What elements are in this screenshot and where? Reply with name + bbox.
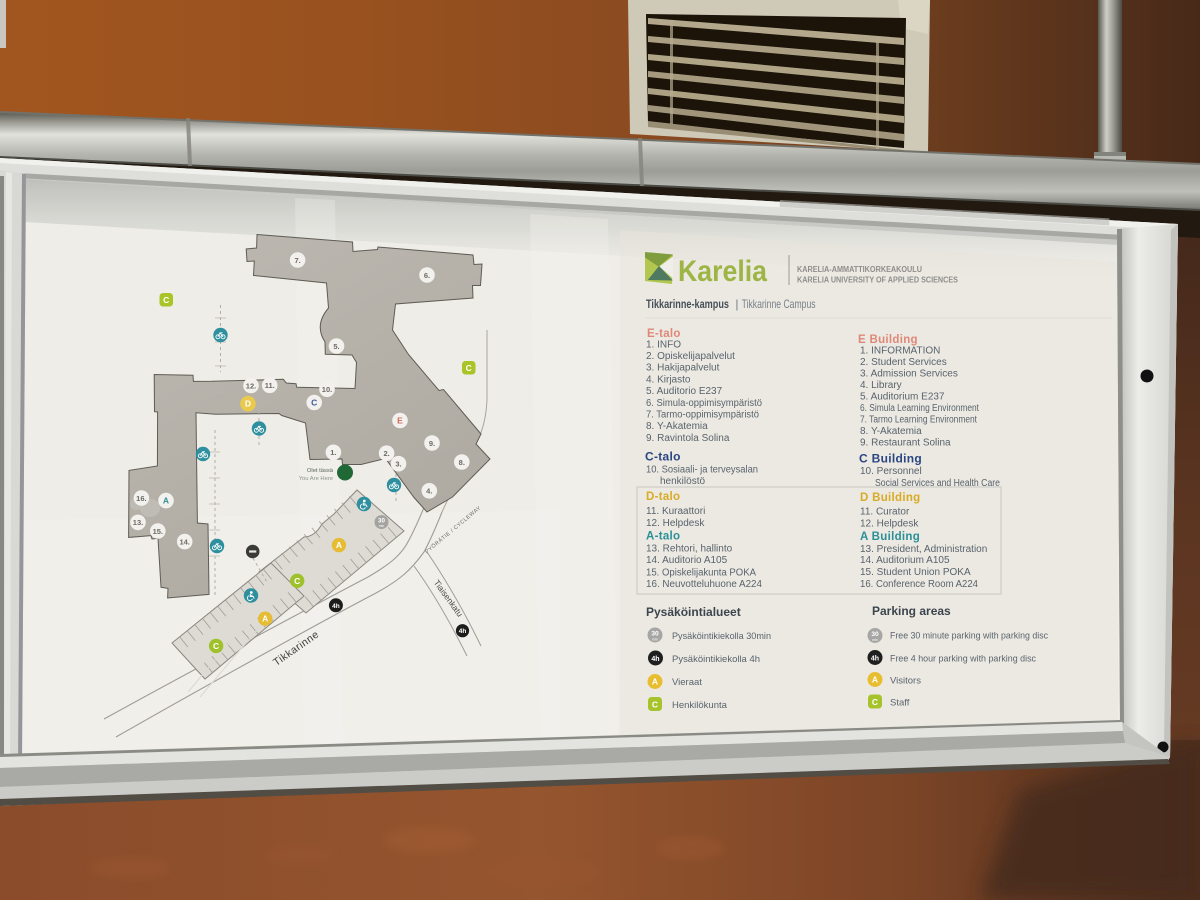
svg-text:henkilöstö: henkilöstö — [660, 476, 705, 487]
svg-text:Henkilökunta: Henkilökunta — [672, 700, 728, 711]
svg-text:C: C — [294, 576, 300, 586]
svg-text:3.: 3. — [395, 460, 401, 469]
svg-text:C: C — [652, 700, 658, 710]
svg-text:3. Hakijapalvelut: 3. Hakijapalvelut — [646, 363, 720, 374]
svg-text:10. Sosiaali- ja terveysalan: 10. Sosiaali- ja terveysalan — [646, 465, 758, 476]
svg-text:1. INFORMATION: 1. INFORMATION — [860, 346, 940, 357]
svg-text:C-talo: C-talo — [645, 450, 681, 464]
svg-text:14. Auditorium A105: 14. Auditorium A105 — [860, 555, 950, 566]
svg-text:C: C — [163, 295, 169, 305]
svg-text:KARELIA UNIVERSITY OF APPLIED: KARELIA UNIVERSITY OF APPLIED SCIENCES — [797, 276, 958, 285]
svg-text:C: C — [872, 697, 878, 707]
svg-text:D Building: D Building — [860, 492, 921, 504]
svg-text:7.: 7. — [294, 256, 300, 265]
svg-text:9.: 9. — [429, 439, 435, 448]
svg-text:Pysäköintikiekolla 30min: Pysäköintikiekolla 30min — [672, 631, 771, 642]
svg-text:Free 30 minute parking with pa: Free 30 minute parking with parking disc — [890, 631, 1048, 642]
svg-text:15. Opiskelijakunta POKA: 15. Opiskelijakunta POKA — [646, 568, 756, 579]
svg-text:Karelia: Karelia — [678, 255, 767, 288]
svg-text:4h: 4h — [459, 628, 467, 635]
svg-text:min: min — [872, 638, 878, 642]
svg-text:4. Kirjasto: 4. Kirjasto — [646, 374, 691, 385]
svg-text:12. Helpdesk: 12. Helpdesk — [646, 518, 705, 529]
svg-text:11. Kuraattori: 11. Kuraattori — [646, 506, 705, 517]
svg-text:C: C — [311, 398, 317, 408]
svg-text:C: C — [213, 641, 219, 651]
svg-text:C Building: C Building — [859, 452, 922, 466]
svg-text:C: C — [466, 363, 472, 373]
svg-text:6. Simula-oppimisympäristö: 6. Simula-oppimisympäristö — [646, 398, 762, 409]
svg-text:2. Student Services: 2. Student Services — [860, 357, 947, 368]
svg-text:1. INFO: 1. INFO — [646, 339, 681, 350]
svg-text:14.: 14. — [179, 537, 189, 546]
svg-text:D: D — [245, 399, 251, 409]
svg-text:Olet tässä: Olet tässä — [307, 468, 334, 474]
svg-text:4h: 4h — [332, 603, 340, 610]
svg-text:A Building: A Building — [860, 531, 920, 543]
svg-text:30: 30 — [871, 631, 879, 638]
svg-text:12. Helpdesk: 12. Helpdesk — [860, 519, 919, 530]
svg-text:Free 4 hour parking with parki: Free 4 hour parking with parking disc — [890, 654, 1036, 665]
svg-text:You Are Here: You Are Here — [299, 476, 333, 482]
svg-text:30: 30 — [651, 630, 659, 637]
svg-text:Pysäköintialueet: Pysäköintialueet — [646, 605, 741, 619]
svg-text:15.: 15. — [153, 527, 163, 536]
svg-text:3. Admission Services: 3. Admission Services — [860, 369, 958, 380]
svg-text:15. Student Union POKA: 15. Student Union POKA — [860, 567, 971, 578]
svg-text:4. Library: 4. Library — [860, 380, 902, 391]
svg-text:16.: 16. — [136, 494, 146, 503]
svg-text:D-talo: D-talo — [646, 491, 680, 503]
svg-text:7. Tarmo Learning Environment: 7. Tarmo Learning Environment — [860, 415, 977, 426]
svg-text:2.: 2. — [383, 449, 389, 458]
svg-text:16. Neuvotteluhuone A224: 16. Neuvotteluhuone A224 — [646, 579, 762, 590]
svg-text:5.: 5. — [333, 342, 339, 351]
svg-text:6. Simula Learning Environment: 6. Simula Learning Environment — [860, 403, 979, 414]
svg-text:Visitors: Visitors — [890, 676, 921, 687]
svg-text:8. Y-Akatemia: 8. Y-Akatemia — [646, 421, 708, 432]
svg-text:8.: 8. — [459, 458, 465, 467]
svg-text:14. Auditorio A105: 14. Auditorio A105 — [646, 555, 728, 566]
svg-text:1.: 1. — [330, 448, 336, 457]
svg-text:8. Y-Akatemia: 8. Y-Akatemia — [860, 426, 922, 437]
svg-text:A: A — [262, 614, 268, 624]
svg-text:E Building: E Building — [858, 334, 918, 346]
svg-text:A: A — [652, 677, 658, 687]
svg-text:A-talo: A-talo — [646, 531, 680, 543]
svg-text:E-talo: E-talo — [647, 328, 681, 340]
svg-text:7. Tarmo-oppimisympäristö: 7. Tarmo-oppimisympäristö — [646, 410, 759, 421]
svg-text:12.: 12. — [246, 381, 256, 390]
svg-text:A: A — [872, 675, 878, 685]
svg-text:Social Services and Health Car: Social Services and Health Care — [875, 478, 1000, 489]
svg-text:5. Auditorio E237: 5. Auditorio E237 — [646, 386, 723, 397]
svg-text:13. President, Administration: 13. President, Administration — [860, 544, 987, 555]
svg-text:KARELIA-AMMATTIKORKEAKOULU: KARELIA-AMMATTIKORKEAKOULU — [797, 265, 922, 274]
svg-text:9. Restaurant Solina: 9. Restaurant Solina — [860, 438, 951, 449]
svg-text:Staff: Staff — [890, 698, 910, 709]
svg-text:16. Conference Room A224: 16. Conference Room A224 — [860, 579, 978, 590]
svg-text:Vieraat: Vieraat — [672, 677, 702, 688]
svg-text:11. Curator: 11. Curator — [860, 507, 910, 518]
svg-text:E: E — [397, 416, 403, 426]
svg-text:min: min — [652, 637, 658, 641]
svg-text:4h: 4h — [651, 656, 659, 663]
svg-text:5. Auditorium E237: 5. Auditorium E237 — [860, 392, 945, 403]
svg-text:11.: 11. — [265, 381, 275, 390]
svg-text:6.: 6. — [424, 271, 430, 280]
svg-text:13. Rehtori, hallinto: 13. Rehtori, hallinto — [646, 544, 733, 555]
svg-text:Parking areas: Parking areas — [872, 604, 951, 618]
svg-text:9. Ravintola Solina: 9. Ravintola Solina — [646, 433, 730, 444]
svg-text:4h: 4h — [871, 655, 879, 662]
svg-text:A: A — [336, 540, 342, 550]
svg-text:A: A — [163, 496, 169, 506]
svg-text:4.: 4. — [426, 487, 432, 496]
svg-text:min: min — [379, 524, 385, 528]
svg-text:13.: 13. — [133, 518, 143, 527]
svg-text:10.: 10. — [322, 385, 332, 394]
svg-text:Pysäköintikiekolla 4h: Pysäköintikiekolla 4h — [672, 654, 760, 665]
svg-text:2. Opiskelijapalvelut: 2. Opiskelijapalvelut — [646, 351, 735, 362]
svg-text:10. Personnel: 10. Personnel — [860, 466, 922, 477]
